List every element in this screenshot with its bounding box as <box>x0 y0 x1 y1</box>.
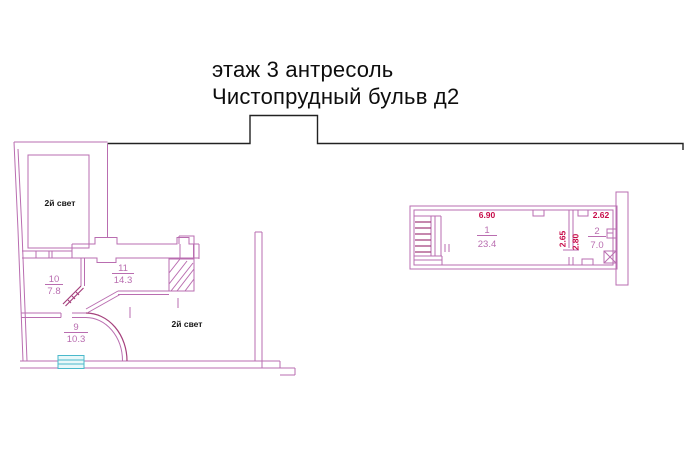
dim-depth-left: 2.65 <box>558 230 568 247</box>
room2-number: 2 <box>594 226 599 237</box>
right-stair-icon <box>414 216 449 265</box>
room1-area: 23.4 <box>478 239 497 250</box>
room10-area: 7.8 <box>47 286 60 297</box>
fixture-icon <box>582 259 593 265</box>
vent-notch-2 <box>578 210 588 216</box>
room10-label: 10 7.8 <box>45 274 63 297</box>
door-leaf-icon <box>63 286 84 306</box>
left-unit: 2й свет 2й свет 10 7.8 11 14.3 9 10.3 <box>14 142 295 375</box>
dim-depth-right: 2.80 <box>571 233 581 250</box>
right-unit-end-cap <box>616 192 628 285</box>
curved-wall-inner <box>86 318 123 362</box>
void-label-2: 2й свет <box>172 319 203 329</box>
room11-corner-wall <box>86 291 120 313</box>
vent-notch-1 <box>533 210 544 216</box>
room1-number: 1 <box>484 225 489 236</box>
room11-number: 11 <box>118 263 128 274</box>
window-icon <box>58 356 84 369</box>
room9-top-wall <box>21 307 130 318</box>
room11-label: 11 14.3 <box>112 263 134 286</box>
room11-area: 14.3 <box>114 275 133 286</box>
room10-number: 10 <box>49 274 60 285</box>
room2-label: 2 7.0 <box>588 226 606 251</box>
right-unit-inner-wall <box>414 210 613 265</box>
left-unit-right-wall <box>255 232 262 368</box>
band-stair-connector <box>180 244 194 259</box>
room1-label: 1 23.4 <box>477 225 497 250</box>
room9-label: 9 10.3 <box>64 322 88 345</box>
floorplan-page: этаж 3 антресоль Чистопрудный бульв д2 <box>0 0 687 457</box>
void-label-1: 2й свет <box>45 198 76 208</box>
building-outline <box>108 116 684 151</box>
room9-number: 9 <box>73 322 78 333</box>
band-wall-left <box>22 251 72 258</box>
right-unit: 6.90 2.62 2.65 2.80 1 23.4 2 7.0 <box>410 192 628 285</box>
floorplan-canvas: 2й свет 2й свет 10 7.8 11 14.3 9 10.3 <box>0 0 687 457</box>
dim-room1-width: 6.90 <box>479 210 496 220</box>
room9-area: 10.3 <box>67 334 86 345</box>
sink-icon <box>604 251 616 263</box>
dim-room2-width: 2.62 <box>593 210 610 220</box>
curved-wall-outer <box>86 313 127 361</box>
building-outline-path <box>108 116 684 151</box>
wall-cabinet-icon <box>607 229 616 238</box>
room2-area: 7.0 <box>590 240 603 251</box>
room11-left-wall <box>81 258 85 286</box>
left-unit-left-wall-outer <box>14 142 23 361</box>
